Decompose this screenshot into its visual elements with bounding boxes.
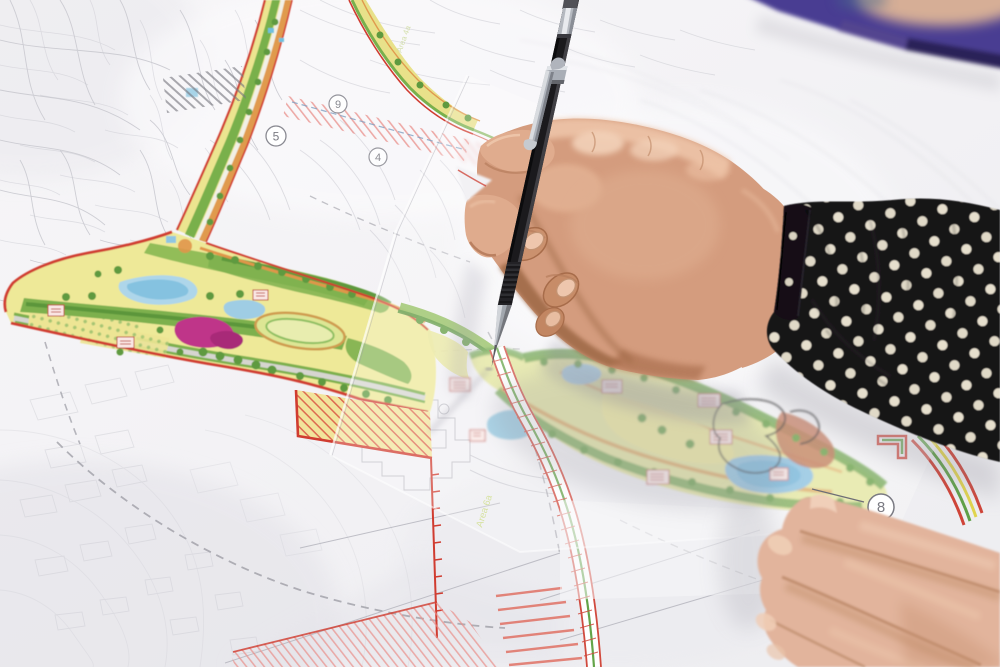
svg-text:4: 4 (375, 152, 381, 164)
svg-text:5: 5 (273, 130, 280, 144)
svg-text:9: 9 (335, 99, 341, 111)
